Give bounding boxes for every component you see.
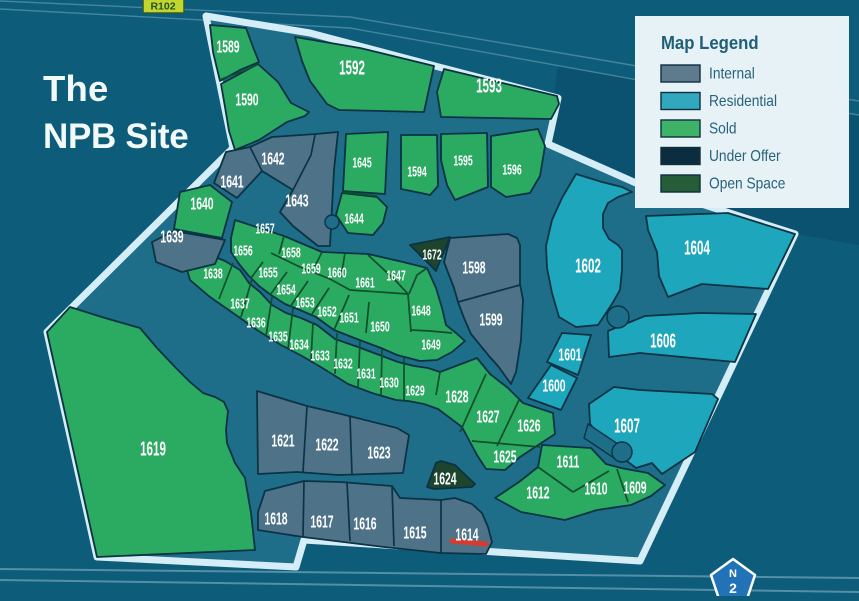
svg-text:1615: 1615 bbox=[403, 524, 426, 544]
svg-text:1631: 1631 bbox=[356, 365, 375, 382]
svg-text:Open Space: Open Space bbox=[709, 175, 785, 193]
svg-text:1657: 1657 bbox=[255, 220, 274, 237]
svg-text:1639: 1639 bbox=[160, 228, 183, 248]
svg-text:1609: 1609 bbox=[623, 479, 646, 499]
svg-text:1652: 1652 bbox=[317, 303, 336, 320]
svg-text:1642: 1642 bbox=[261, 150, 284, 170]
svg-text:1630: 1630 bbox=[379, 374, 398, 391]
svg-text:1672: 1672 bbox=[422, 246, 441, 263]
svg-text:1648: 1648 bbox=[411, 302, 430, 319]
svg-text:1659: 1659 bbox=[301, 260, 320, 277]
svg-text:1649: 1649 bbox=[421, 336, 440, 353]
svg-text:1623: 1623 bbox=[367, 444, 390, 464]
svg-text:1629: 1629 bbox=[405, 382, 424, 399]
svg-text:1611: 1611 bbox=[557, 453, 580, 473]
svg-text:Map Legend: Map Legend bbox=[661, 32, 759, 53]
svg-text:1610: 1610 bbox=[584, 480, 607, 500]
svg-text:1634: 1634 bbox=[289, 336, 308, 353]
svg-text:1616: 1616 bbox=[353, 515, 376, 535]
svg-text:1596: 1596 bbox=[502, 161, 521, 178]
svg-text:Sold: Sold bbox=[709, 120, 737, 138]
svg-text:Residential: Residential bbox=[709, 92, 777, 110]
svg-text:1635: 1635 bbox=[268, 328, 287, 345]
svg-text:1592: 1592 bbox=[339, 57, 365, 79]
svg-text:1637: 1637 bbox=[230, 295, 249, 312]
svg-text:Under Offer: Under Offer bbox=[709, 147, 781, 165]
svg-text:1643: 1643 bbox=[285, 192, 308, 212]
svg-text:1602: 1602 bbox=[575, 255, 601, 277]
svg-text:1589: 1589 bbox=[216, 38, 239, 58]
svg-text:1656: 1656 bbox=[233, 242, 252, 259]
svg-text:1654: 1654 bbox=[276, 281, 295, 298]
svg-text:Internal: Internal bbox=[709, 65, 755, 83]
svg-text:1612: 1612 bbox=[526, 484, 549, 504]
svg-text:1593: 1593 bbox=[476, 75, 502, 97]
svg-text:2: 2 bbox=[729, 580, 737, 596]
svg-text:N: N bbox=[729, 568, 737, 580]
svg-text:1645: 1645 bbox=[352, 154, 371, 171]
svg-text:1633: 1633 bbox=[310, 347, 329, 364]
svg-text:1619: 1619 bbox=[140, 438, 166, 460]
svg-text:1658: 1658 bbox=[281, 244, 300, 261]
svg-text:NPB Site: NPB Site bbox=[43, 117, 188, 156]
svg-text:1618: 1618 bbox=[264, 510, 287, 530]
svg-text:1624: 1624 bbox=[433, 470, 457, 490]
svg-text:1644: 1644 bbox=[344, 210, 363, 227]
svg-text:1599: 1599 bbox=[479, 311, 502, 331]
svg-text:1628: 1628 bbox=[445, 388, 468, 408]
svg-text:1626: 1626 bbox=[517, 417, 540, 437]
svg-text:1607: 1607 bbox=[614, 415, 640, 437]
svg-text:1594: 1594 bbox=[407, 163, 426, 180]
svg-text:1653: 1653 bbox=[295, 294, 314, 311]
svg-text:1650: 1650 bbox=[370, 318, 389, 335]
svg-text:1660: 1660 bbox=[327, 264, 346, 281]
svg-text:1622: 1622 bbox=[315, 436, 338, 456]
svg-text:The: The bbox=[43, 68, 109, 109]
svg-text:1636: 1636 bbox=[246, 314, 265, 331]
svg-text:1655: 1655 bbox=[258, 264, 277, 281]
svg-text:1595: 1595 bbox=[453, 152, 472, 169]
svg-text:1617: 1617 bbox=[310, 513, 333, 533]
svg-text:1604: 1604 bbox=[684, 237, 710, 259]
svg-text:1614: 1614 bbox=[455, 526, 479, 546]
svg-text:1632: 1632 bbox=[333, 355, 352, 372]
svg-text:1621: 1621 bbox=[271, 432, 294, 452]
svg-text:1651: 1651 bbox=[339, 309, 358, 326]
svg-text:R102: R102 bbox=[150, 1, 175, 13]
svg-text:1627: 1627 bbox=[476, 408, 499, 428]
svg-text:1590: 1590 bbox=[235, 91, 258, 111]
svg-text:1640: 1640 bbox=[190, 195, 213, 215]
svg-text:1625: 1625 bbox=[493, 448, 516, 468]
svg-text:1661: 1661 bbox=[355, 274, 374, 291]
svg-text:1606: 1606 bbox=[650, 330, 676, 352]
svg-text:1647: 1647 bbox=[386, 267, 405, 284]
svg-text:1600: 1600 bbox=[542, 377, 565, 397]
svg-text:1598: 1598 bbox=[462, 259, 485, 279]
svg-text:1638: 1638 bbox=[203, 265, 222, 282]
svg-text:1641: 1641 bbox=[220, 173, 243, 193]
svg-text:1601: 1601 bbox=[558, 346, 581, 366]
